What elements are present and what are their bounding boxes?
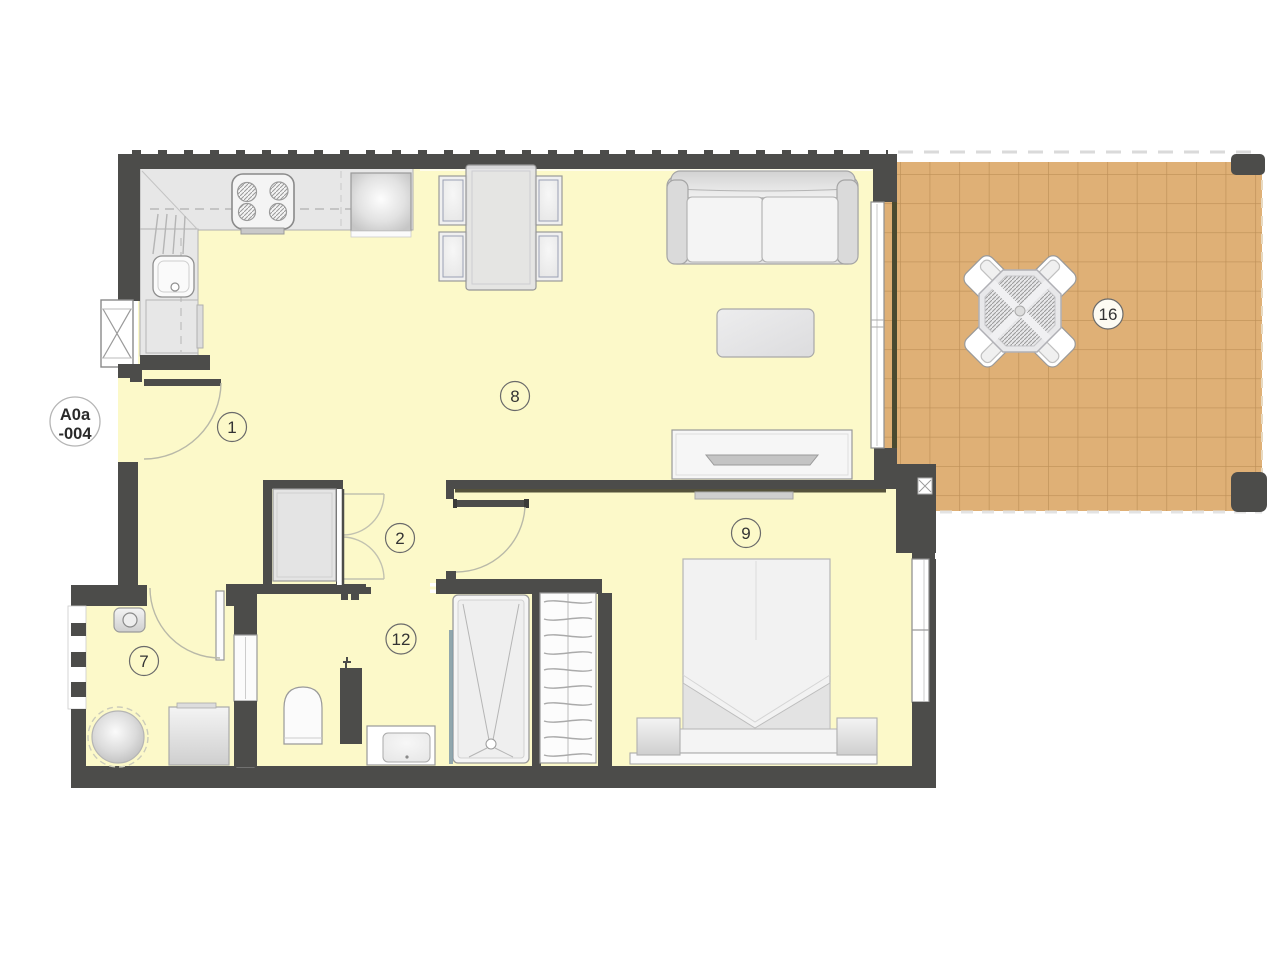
svg-text:9: 9 — [741, 524, 750, 543]
svg-text:8: 8 — [510, 387, 519, 406]
svg-text:A0a: A0a — [60, 406, 91, 424]
svg-text:12: 12 — [392, 630, 411, 649]
svg-text:-004: -004 — [58, 425, 92, 443]
svg-text:1: 1 — [227, 418, 236, 437]
svg-text:7: 7 — [139, 652, 148, 671]
svg-text:2: 2 — [395, 529, 404, 548]
svg-text:16: 16 — [1099, 305, 1118, 324]
